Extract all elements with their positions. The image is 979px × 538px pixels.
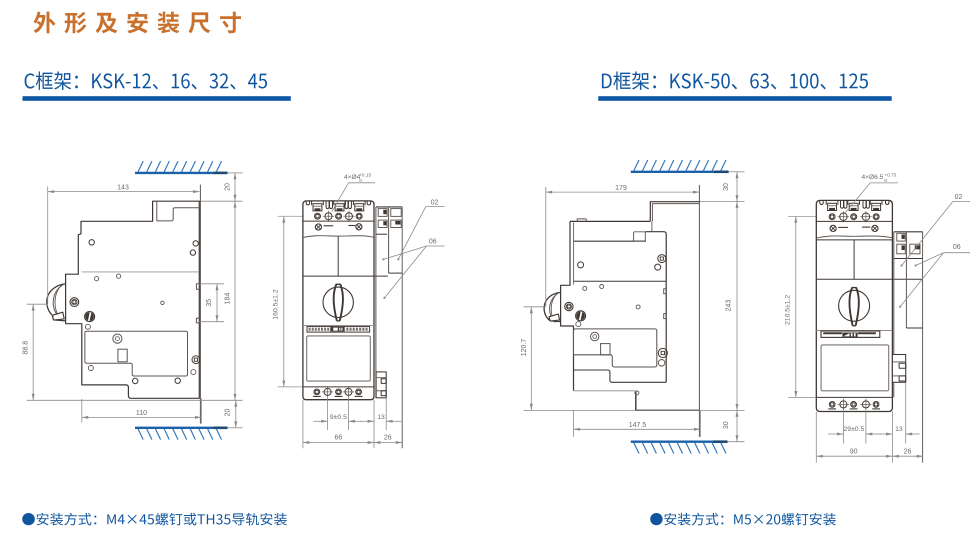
svg-text:88.8: 88.8 xyxy=(23,341,30,355)
svg-text:160.5±1.2: 160.5±1.2 xyxy=(273,289,280,319)
svg-text:20: 20 xyxy=(224,183,231,191)
svg-text:120.7: 120.7 xyxy=(521,339,528,357)
svg-text:06: 06 xyxy=(953,244,961,251)
svg-text:20: 20 xyxy=(225,409,232,417)
svg-text:02: 02 xyxy=(955,194,963,201)
svg-text:0: 0 xyxy=(884,178,887,183)
svg-text:66: 66 xyxy=(335,434,343,441)
svg-text:06: 06 xyxy=(429,239,437,246)
svg-text:+0.75: +0.75 xyxy=(884,172,896,177)
svg-text:90: 90 xyxy=(850,448,858,455)
svg-text:4×Ø6.5: 4×Ø6.5 xyxy=(862,174,884,181)
svg-text:143: 143 xyxy=(117,184,129,191)
svg-text:179: 179 xyxy=(615,185,627,192)
svg-text:02: 02 xyxy=(431,199,439,206)
svg-text:4×Ø4: 4×Ø4 xyxy=(344,174,361,181)
svg-text:243: 243 xyxy=(726,300,733,312)
svg-text:30: 30 xyxy=(723,421,730,429)
svg-text:184: 184 xyxy=(225,293,232,305)
svg-text:210.5±1.2: 210.5±1.2 xyxy=(784,295,791,325)
svg-text:13: 13 xyxy=(895,426,903,433)
svg-text:+0.15: +0.15 xyxy=(359,172,371,177)
svg-text:147.5: 147.5 xyxy=(629,422,647,429)
svg-text:26: 26 xyxy=(904,448,912,455)
svg-text:9±0.5: 9±0.5 xyxy=(330,414,347,421)
svg-text:110: 110 xyxy=(136,410,147,417)
svg-text:29±0.5: 29±0.5 xyxy=(844,426,865,433)
svg-text:26: 26 xyxy=(384,434,392,441)
svg-text:35: 35 xyxy=(206,299,213,307)
svg-text:13: 13 xyxy=(377,414,385,421)
svg-text:30: 30 xyxy=(723,183,730,191)
